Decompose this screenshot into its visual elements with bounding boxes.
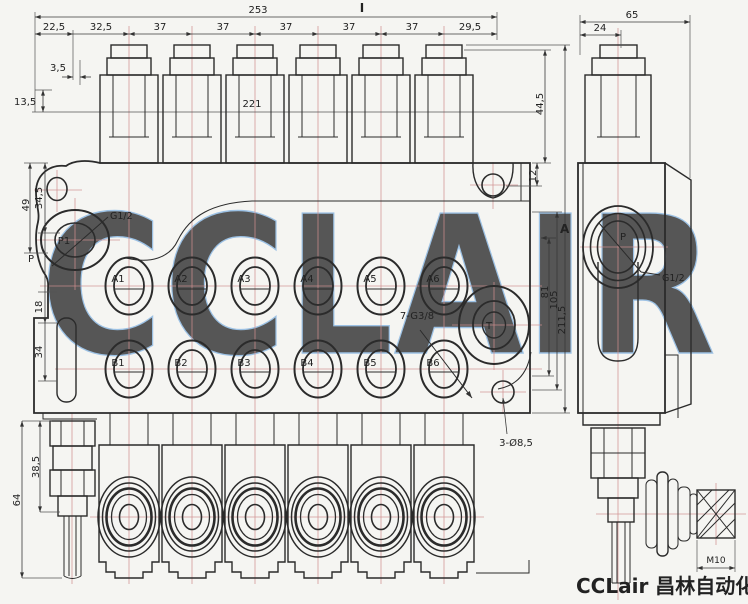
label-port-b6: B6 — [426, 358, 439, 369]
dim-pitch-5: 37 — [406, 22, 419, 33]
label-inlet-port: P1 — [58, 236, 70, 247]
label-port-b1: B1 — [111, 358, 124, 369]
technical-drawing: CCLAIR — [0, 0, 748, 604]
label-port-a1: A1 — [111, 274, 124, 285]
dim-seg2: 32,5 — [90, 22, 112, 33]
dim-pitch-3: 37 — [280, 22, 293, 33]
relief-valve-front — [50, 421, 95, 579]
dim-pitch-4: 37 — [343, 22, 356, 33]
label-port-b5: B5 — [363, 358, 376, 369]
label-tank-port: T — [485, 321, 493, 332]
dim-offset-small: 3,5 — [50, 63, 66, 74]
label-port-b4: B4 — [300, 358, 313, 369]
label-port-a4: A4 — [300, 274, 313, 285]
dim-left-1: 34,5 — [34, 187, 45, 209]
handle-joints — [98, 413, 475, 578]
dim-right-1: 12 — [528, 170, 539, 183]
label-side-thread: G1/2 — [662, 273, 685, 284]
drawing-canvas: CCLAIR — [0, 0, 748, 604]
dim-left-3: 18 — [34, 301, 45, 314]
spool-caps — [100, 45, 473, 163]
dim-line-offset: 13,5 — [14, 97, 36, 108]
dim-seg-right: 29,5 — [459, 22, 481, 33]
label-port-a2: A2 — [174, 274, 187, 285]
dim-overall-width: 253 — [248, 5, 267, 16]
dim-left-port-level: P — [28, 254, 34, 265]
label-side-port: P — [620, 232, 626, 243]
dim-bottom-1: 38,5 — [31, 456, 42, 478]
label-port-b3: B3 — [237, 358, 250, 369]
dim-right-4: 211,5 — [557, 306, 568, 335]
dim-handle-thread: M10 — [706, 556, 725, 566]
section-marker-top: I — [360, 1, 364, 15]
dim-side-overall: 65 — [626, 10, 639, 21]
label-port-a5: A5 — [363, 274, 376, 285]
dim-body-width: 221 — [242, 99, 261, 110]
label-inlet-thread: G1/2 — [110, 211, 133, 222]
dim-pitch-2: 37 — [217, 22, 230, 33]
dim-bottom-2: 64 — [12, 494, 23, 507]
label-mounting-holes: 3-Ø8,5 — [499, 437, 533, 449]
section-marker-side: A — [560, 222, 570, 236]
label-port-b2: B2 — [174, 358, 187, 369]
dim-seg1: 22,5 — [43, 22, 65, 33]
brand-logo-text: CCLair 昌林自动化 — [576, 574, 748, 598]
label-port-a3: A3 — [237, 274, 250, 285]
dim-side-offset: 24 — [594, 23, 607, 34]
dim-left-2: 49 — [21, 199, 32, 212]
dim-cap-height: 44,5 — [535, 93, 546, 115]
dim-pitch-1: 37 — [154, 22, 167, 33]
label-work-ports-thread: 7-G3/8 — [400, 311, 434, 322]
dim-left-4: 34 — [34, 346, 45, 359]
label-port-a6: A6 — [426, 274, 439, 285]
